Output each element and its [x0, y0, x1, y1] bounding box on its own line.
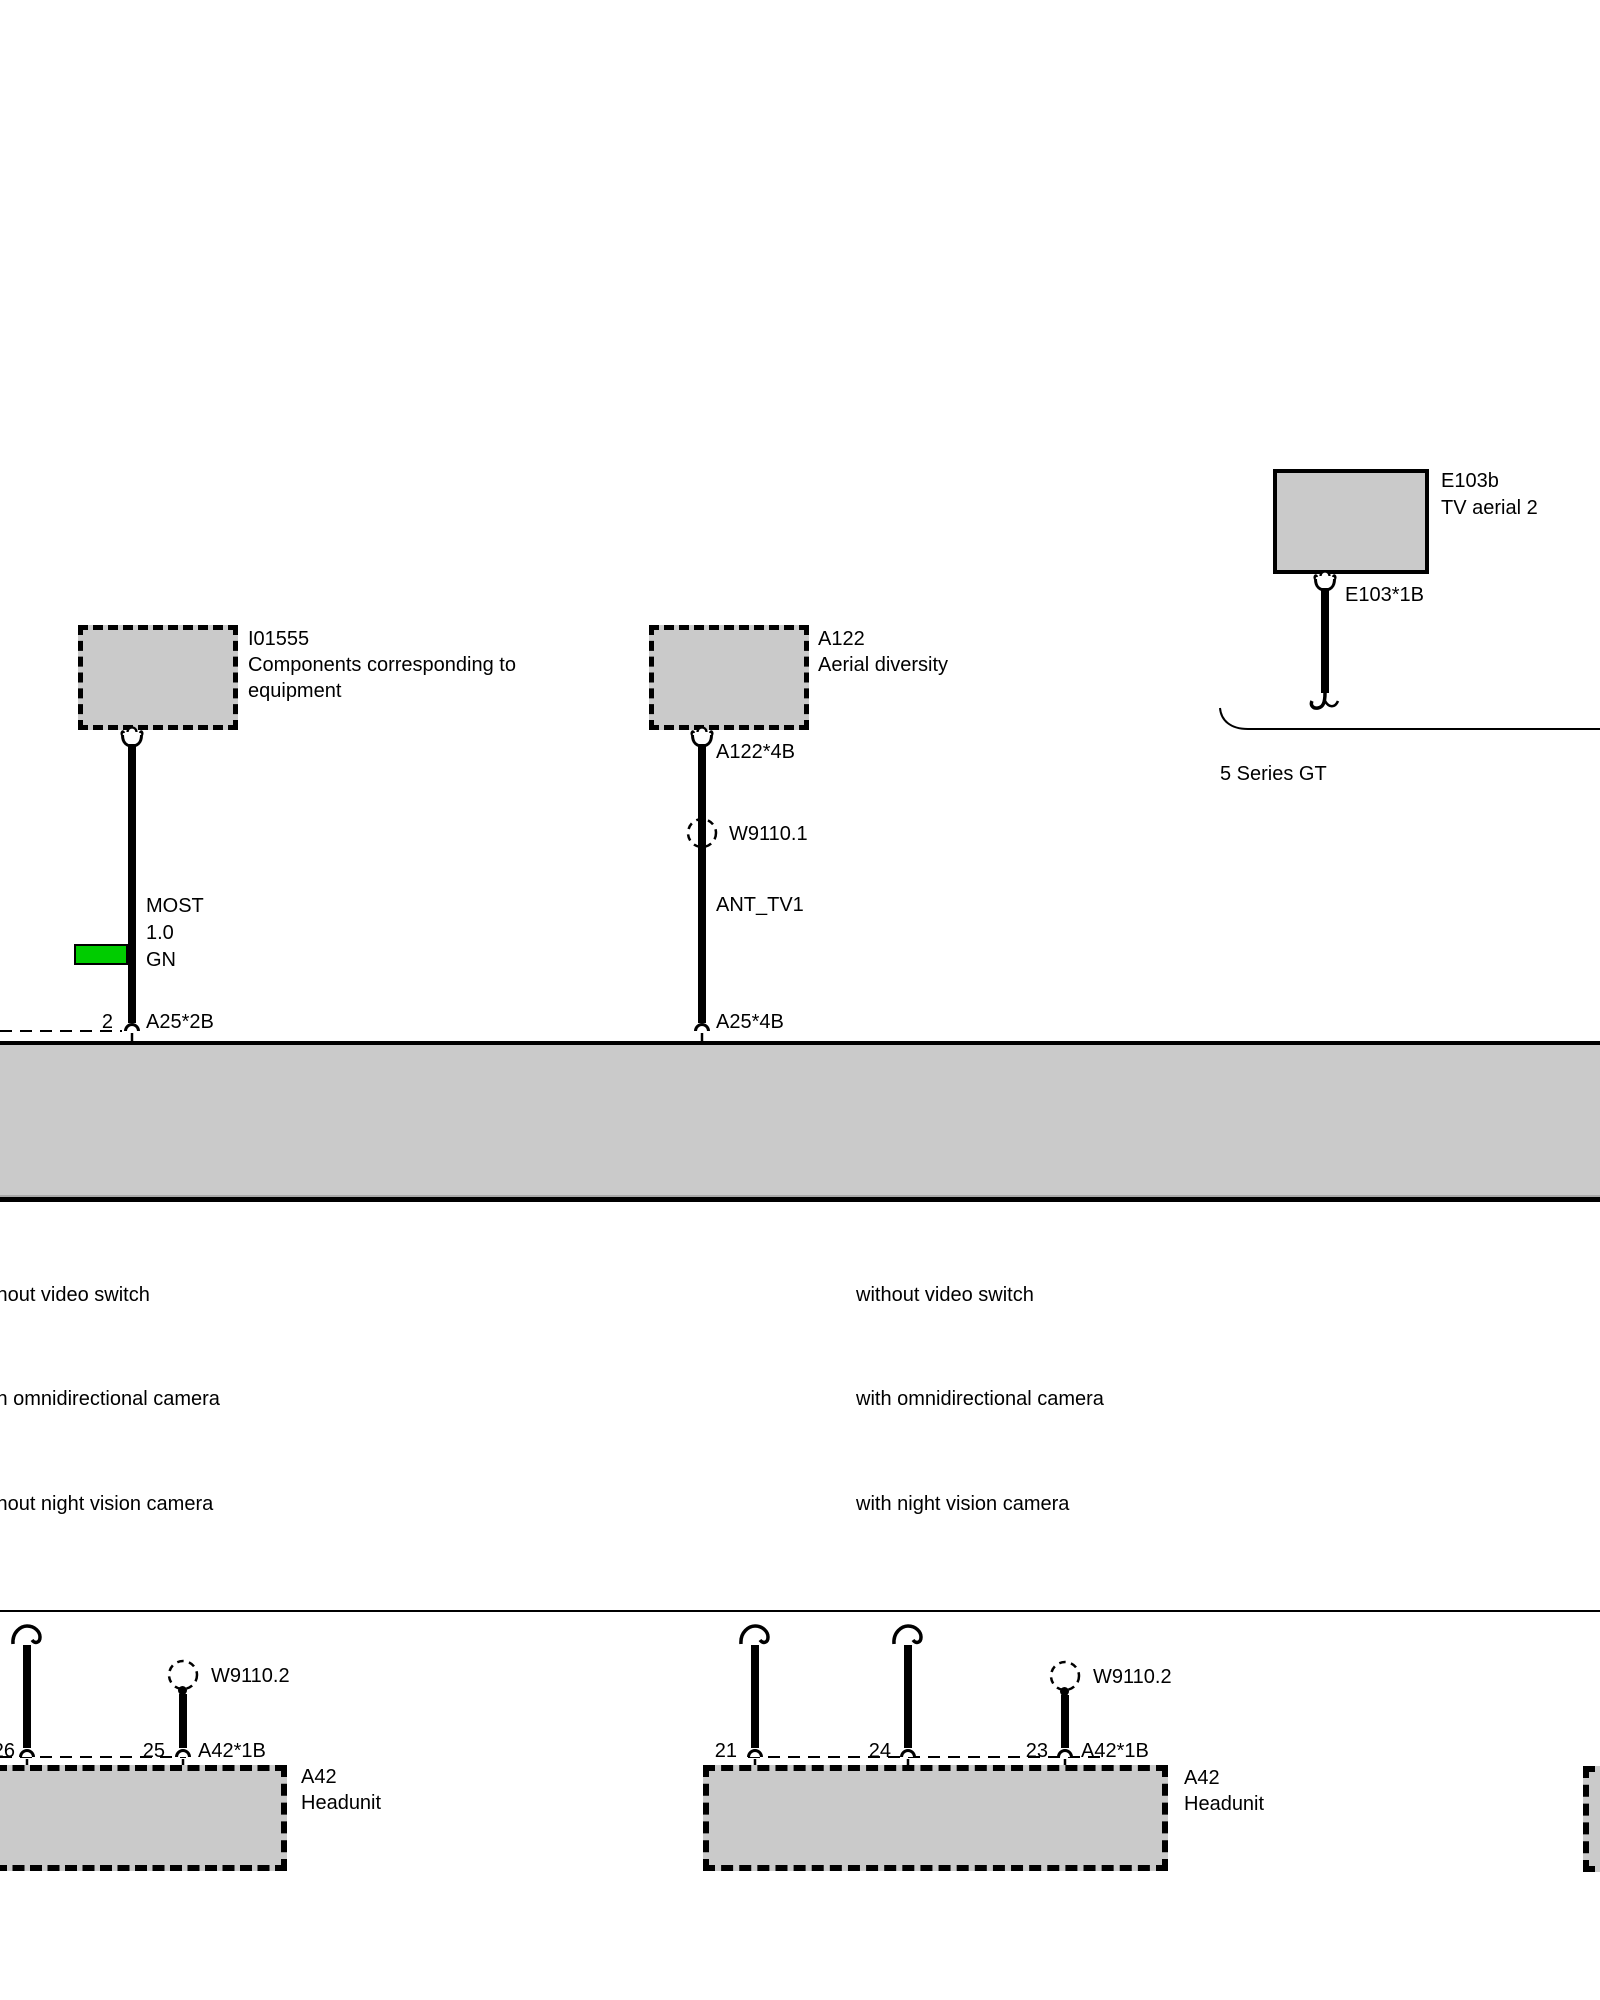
option-left-video-switch: without video switch: [0, 1283, 150, 1307]
wire-continuation-curl-icon: [739, 1624, 771, 1646]
wiring-diagram-page: E103b TV aerial 2 E103*1B 5 Series GT I0…: [0, 0, 1600, 2000]
signal-label-ant-tv1: ANT_TV1: [716, 893, 804, 917]
connector-label-a25-2b: A25*2B: [146, 1010, 214, 1034]
pin-number-21: 21: [697, 1739, 737, 1763]
connector-plane-dashed-line: [748, 1756, 1108, 1758]
splice-label-w9110-2: W9110.2: [1093, 1665, 1172, 1689]
component-box-tv-aerial-2: [1273, 469, 1429, 574]
wire-color-label: GN: [146, 948, 176, 972]
wire-most: [128, 744, 136, 1023]
component-box-headunit-mid: [703, 1765, 1168, 1871]
component-box-i01555: [78, 625, 238, 730]
wire-pin26: [23, 1645, 31, 1748]
component-box-headunit-left: [0, 1765, 287, 1871]
option-right-video-switch: without video switch: [856, 1283, 1034, 1307]
wire-pin23: [1061, 1695, 1069, 1748]
component-name-headunit: Headunit: [301, 1791, 381, 1815]
wire-pin25: [179, 1694, 187, 1748]
connector-label-a122-4b: A122*4B: [716, 740, 795, 764]
component-id-i01555: I01555: [248, 627, 309, 651]
wire-e103: [1321, 588, 1329, 693]
connector-label-e103-1b: E103*1B: [1345, 583, 1424, 607]
component-box-partial-right: [1583, 1766, 1600, 1872]
option-left-omnidirectional-camera: with omnidirectional camera: [0, 1387, 220, 1411]
component-name-tv-aerial-2: TV aerial 2: [1441, 496, 1538, 520]
pin-number-25: 25: [125, 1739, 165, 1763]
wire-pin21: [751, 1645, 759, 1748]
wire-bus-label: MOST: [146, 894, 204, 918]
vehicle-note: 5 Series GT: [1220, 762, 1327, 786]
wire-continuation-curl-icon: [892, 1624, 924, 1646]
component-name-headunit: Headunit: [1184, 1792, 1264, 1816]
connector-label-a25-4b: A25*4B: [716, 1010, 784, 1034]
amplifier-band: [0, 1041, 1600, 1202]
component-id-a42: A42: [301, 1765, 337, 1789]
pin-number-23: 23: [1008, 1739, 1048, 1763]
group-bracket-icon: [1218, 708, 1600, 734]
component-edge-dashed-line: [0, 1030, 122, 1032]
wire-gauge-label: 1.0: [146, 921, 174, 945]
component-id-e103b: E103b: [1441, 469, 1499, 493]
component-name-aerial-diversity: Aerial diversity: [818, 653, 948, 677]
component-desc-line1: Components corresponding to: [248, 653, 516, 677]
wire-continuation-curl-icon: [11, 1624, 43, 1646]
splice-label-w9110-2: W9110.2: [211, 1664, 290, 1688]
wire-ant-tv1: [698, 744, 706, 1023]
option-right-omnidirectional-camera: with omnidirectional camera: [856, 1387, 1104, 1411]
option-left-night-vision-camera: without night vision camera: [0, 1492, 213, 1516]
component-box-a122: [649, 625, 809, 730]
wire-color-swatch: [74, 944, 128, 965]
connector-label-a42-1b: A42*1B: [1081, 1739, 1149, 1763]
component-desc-line2: equipment: [248, 679, 341, 703]
pin-number-24: 24: [851, 1739, 891, 1763]
component-id-a122: A122: [818, 627, 865, 651]
component-id-a42: A42: [1184, 1766, 1220, 1790]
wire-pin24: [904, 1645, 912, 1748]
pin-number-26: 26: [0, 1739, 15, 1763]
connector-label-a42-1b: A42*1B: [198, 1739, 266, 1763]
splice-label-w9110-1: W9110.1: [729, 822, 808, 846]
separator-line: [0, 1610, 1600, 1612]
option-right-night-vision-camera: with night vision camera: [856, 1492, 1069, 1516]
